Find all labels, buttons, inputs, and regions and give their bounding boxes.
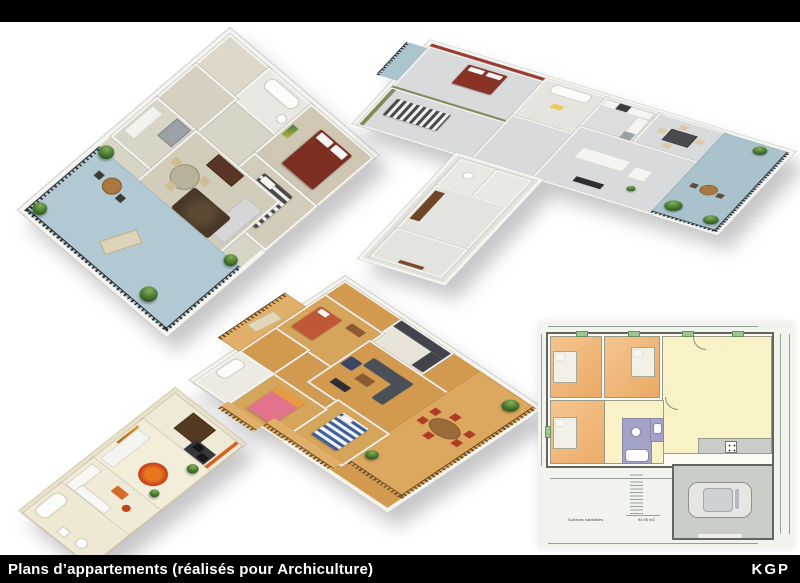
- surface-label: Surfaces habitables: [568, 518, 603, 522]
- kitchen-counter-strip: [698, 438, 772, 454]
- room-areas-list: [630, 474, 643, 514]
- bedroom-1: [550, 336, 602, 398]
- armchair-dark: [340, 356, 363, 371]
- service-wing: [357, 153, 543, 286]
- coffee-table: [354, 373, 375, 387]
- top-border-bar: [0, 0, 800, 22]
- stove: [725, 441, 737, 453]
- pillow: [634, 350, 642, 356]
- window: [732, 331, 744, 337]
- entry-door: [398, 260, 425, 270]
- floorplate: [352, 40, 795, 235]
- bathtub: [625, 449, 649, 462]
- floorplate: [189, 276, 543, 513]
- dimension-line-top: [548, 326, 758, 327]
- plant: [147, 488, 161, 499]
- chair-red: [463, 430, 476, 439]
- tv-bench: [572, 176, 604, 189]
- floorplate: [19, 388, 245, 566]
- bed-blue-striped: [311, 412, 369, 451]
- chair-red: [449, 413, 462, 422]
- chair-red: [450, 439, 463, 448]
- dimension-line-left: [541, 334, 542, 466]
- caption-text: Plans d’appartements (réalisés pour Arch…: [0, 561, 373, 578]
- garage: [672, 464, 774, 540]
- chair-red: [429, 408, 442, 417]
- sink: [56, 526, 71, 538]
- terrace-railing: [24, 208, 168, 332]
- terrace-chair: [94, 170, 105, 180]
- bed-red: [282, 129, 353, 190]
- toilet: [72, 536, 90, 550]
- bath-mat: [550, 103, 564, 110]
- dimension-line-inner: [550, 478, 672, 479]
- garage-door: [698, 534, 742, 538]
- plant: [661, 199, 686, 213]
- wc: [650, 418, 664, 442]
- dimension-line-right: [780, 334, 781, 534]
- bathtub: [261, 76, 302, 111]
- terrace-railing: [344, 459, 404, 499]
- plant: [750, 145, 770, 156]
- tv-bench: [329, 378, 351, 393]
- drawing-sheet: Surfaces habitables 94,95 m2: [538, 322, 794, 548]
- pillow: [556, 420, 564, 426]
- car: [688, 482, 752, 518]
- terrace-chair: [115, 193, 126, 203]
- bathtub: [547, 84, 593, 104]
- terrace-railing: [164, 266, 241, 332]
- lounge-chair: [99, 229, 142, 255]
- door-arc: [693, 337, 706, 350]
- window: [628, 331, 640, 337]
- brand-text: KGP: [751, 561, 800, 578]
- dimension-line-right-outer: [789, 334, 790, 534]
- window: [545, 426, 551, 438]
- kitchen-counter: [393, 320, 451, 359]
- window: [682, 331, 694, 337]
- pillow: [556, 354, 564, 360]
- car-roof: [703, 488, 733, 512]
- bed-red: [452, 64, 508, 95]
- living-room: [662, 336, 772, 454]
- chair: [694, 139, 705, 145]
- terrace-chair: [715, 193, 725, 199]
- wardrobe: [409, 190, 445, 221]
- chair: [662, 142, 673, 148]
- terrace-railing: [713, 152, 790, 232]
- bed: [553, 351, 577, 383]
- poster: Surfaces habitables 94,95 m2 Plans d’app…: [0, 0, 800, 583]
- pillow: [339, 415, 353, 424]
- car-windshield: [735, 489, 739, 509]
- total-rule: [626, 515, 660, 516]
- sink: [631, 427, 641, 437]
- wall-art: [282, 124, 299, 139]
- bed: [553, 417, 577, 449]
- surface-total: 94,95 m2: [638, 518, 655, 522]
- desk: [206, 154, 244, 187]
- toilet: [460, 171, 476, 180]
- chair: [678, 125, 689, 131]
- bed-striped: [383, 99, 451, 131]
- armchair-white: [626, 167, 653, 183]
- plant: [625, 185, 637, 192]
- door-arc: [665, 397, 678, 410]
- balcony-railing: [376, 42, 409, 76]
- pillow: [485, 72, 503, 80]
- terrace-chair: [689, 183, 699, 189]
- caption-bar: Plans d’appartements (réalisés pour Arch…: [0, 555, 800, 583]
- plant: [136, 283, 161, 305]
- bedroom-2: [604, 336, 660, 398]
- house-outline: [546, 332, 774, 468]
- sofa-white: [573, 147, 631, 172]
- plant: [498, 397, 523, 414]
- floor-mat-orange: [111, 486, 129, 500]
- pillow: [317, 309, 330, 318]
- pillow: [330, 144, 348, 160]
- pillow: [316, 132, 334, 148]
- bed: [631, 347, 655, 377]
- dimension-line-bottom: [548, 543, 758, 544]
- toilet: [653, 423, 662, 434]
- plant: [184, 462, 201, 475]
- pillow: [467, 67, 485, 75]
- bathtub: [32, 491, 70, 521]
- bathtub: [213, 357, 247, 380]
- rug-red-round: [132, 458, 174, 491]
- stool-red: [120, 503, 133, 513]
- bathroom: [622, 418, 652, 464]
- window: [576, 331, 588, 337]
- desk: [345, 323, 366, 337]
